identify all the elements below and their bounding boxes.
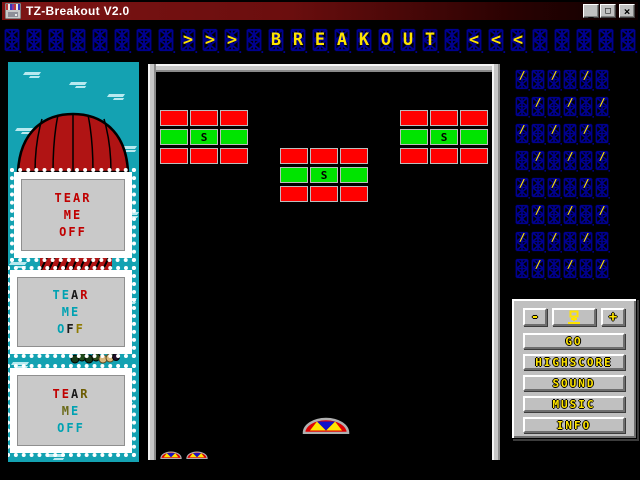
tear-off-stamp[interactable]: TEARMEOFF bbox=[14, 172, 132, 258]
marquee-led-cell: K bbox=[353, 27, 375, 53]
marquee-led-cell bbox=[243, 27, 265, 53]
grid-led-cell bbox=[546, 257, 562, 280]
grid-led-cell: / bbox=[530, 95, 546, 118]
control-panel: - + GOHIGHSCORESOUNDMUSICINFO bbox=[511, 298, 637, 439]
jellyfish-dome bbox=[12, 110, 134, 174]
app-window: TZ-Breakout V2.0 _ □ × >>>BREAKOUT<<< bbox=[0, 0, 640, 480]
brick bbox=[190, 110, 218, 126]
marquee-led-cell: E bbox=[309, 27, 331, 53]
grid-led-cell bbox=[562, 122, 578, 145]
paddle[interactable] bbox=[302, 417, 350, 434]
grid-led-cell: / bbox=[530, 149, 546, 172]
brick bbox=[430, 148, 458, 164]
stamp-text-line: TEAR bbox=[53, 288, 90, 302]
menu-buttons: GOHIGHSCORESOUNDMUSICINFO bbox=[523, 333, 625, 433]
grid-led-cell: / bbox=[562, 257, 578, 280]
adjuster-row: - + bbox=[523, 308, 625, 326]
grid-led-cell: / bbox=[514, 68, 530, 91]
sound-button[interactable]: SOUND bbox=[523, 375, 625, 391]
wind-streak bbox=[9, 262, 27, 265]
grid-led-cell bbox=[594, 122, 610, 145]
marquee-led-cell: U bbox=[397, 27, 419, 53]
brick bbox=[220, 148, 248, 164]
led-grid: //////////////////////// bbox=[514, 68, 610, 284]
playfield-interior: SSS bbox=[156, 72, 492, 462]
grid-led-cell: / bbox=[546, 176, 562, 199]
marquee-led-cell: A bbox=[331, 27, 353, 53]
grid-led-cell bbox=[578, 257, 594, 280]
tear-off-stamp[interactable]: TEARMEOFF bbox=[10, 270, 132, 354]
brick bbox=[460, 110, 488, 126]
brick bbox=[160, 129, 188, 145]
stamp-face: TEARMEOFF bbox=[17, 277, 125, 347]
grid-led-cell: / bbox=[562, 203, 578, 226]
marquee-led-cell bbox=[573, 27, 595, 53]
brick bbox=[190, 148, 218, 164]
stamp-text-line: ME bbox=[62, 404, 80, 418]
marquee-led-cell: R bbox=[287, 27, 309, 53]
grid-led-cell bbox=[514, 149, 530, 172]
grid-led-cell: / bbox=[594, 257, 610, 280]
marquee-display: >>>BREAKOUT<<< bbox=[1, 27, 639, 53]
playfield: SSS bbox=[148, 64, 500, 462]
marquee-led-cell bbox=[89, 27, 111, 53]
special-brick: S bbox=[430, 129, 458, 145]
marquee-led-cell bbox=[617, 27, 639, 53]
grid-led-cell bbox=[594, 68, 610, 91]
brick bbox=[160, 148, 188, 164]
brick bbox=[460, 129, 488, 145]
wind-streak bbox=[23, 72, 41, 75]
wind-streak bbox=[47, 454, 65, 457]
brick bbox=[310, 186, 338, 202]
stamp-text-line: OFF bbox=[57, 322, 85, 336]
grid-led-cell bbox=[530, 176, 546, 199]
brick bbox=[460, 148, 488, 164]
grid-led-cell: / bbox=[514, 122, 530, 145]
marquee-led-cell bbox=[551, 27, 573, 53]
grid-led-cell: / bbox=[562, 95, 578, 118]
marquee-led-cell bbox=[67, 27, 89, 53]
special-brick: S bbox=[310, 167, 338, 183]
grid-led-cell bbox=[594, 176, 610, 199]
stamp-text-line: OFF bbox=[57, 421, 85, 435]
brick bbox=[280, 186, 308, 202]
grid-led-cell: / bbox=[562, 149, 578, 172]
grid-led-cell: / bbox=[514, 230, 530, 253]
decrease-button[interactable]: - bbox=[523, 308, 547, 326]
marquee-led-cell: > bbox=[177, 27, 199, 53]
wind-streak bbox=[107, 94, 125, 97]
playfield-wall-right bbox=[492, 64, 500, 460]
grid-led-cell: / bbox=[530, 203, 546, 226]
marquee-led-cell bbox=[45, 27, 67, 53]
marquee-led-cell bbox=[595, 27, 617, 53]
grid-led-cell bbox=[562, 230, 578, 253]
marquee-led-cell: O bbox=[375, 27, 397, 53]
app-icon bbox=[5, 3, 21, 19]
player-level-button[interactable] bbox=[552, 308, 596, 326]
window-controls: _ □ × bbox=[583, 4, 635, 18]
music-button[interactable]: MUSIC bbox=[523, 396, 625, 412]
go-button[interactable]: GO bbox=[523, 333, 625, 349]
window-title: TZ-Breakout V2.0 bbox=[26, 4, 130, 18]
wind-streak bbox=[69, 82, 87, 85]
grid-led-cell: / bbox=[546, 122, 562, 145]
grid-led-cell: / bbox=[514, 176, 530, 199]
grid-led-cell bbox=[530, 122, 546, 145]
marquee-led-cell bbox=[529, 27, 551, 53]
grid-led-cell: / bbox=[578, 122, 594, 145]
titlebar: TZ-Breakout V2.0 _ □ × bbox=[2, 2, 638, 20]
marquee-led-cell bbox=[133, 27, 155, 53]
stamp-face: TEARMEOFF bbox=[21, 179, 125, 251]
marquee-led-cell bbox=[1, 27, 23, 53]
grid-led-cell bbox=[530, 68, 546, 91]
grid-led-cell: / bbox=[530, 257, 546, 280]
highscore-button[interactable]: HIGHSCORE bbox=[523, 354, 625, 370]
increase-button[interactable]: + bbox=[601, 308, 625, 326]
stamp-text-line: TEAR bbox=[55, 191, 92, 205]
grid-led-cell bbox=[514, 203, 530, 226]
brick bbox=[340, 186, 368, 202]
stamp-text-line: ME bbox=[62, 305, 80, 319]
brick bbox=[160, 110, 188, 126]
grid-led-cell bbox=[578, 149, 594, 172]
grid-led-cell: / bbox=[594, 95, 610, 118]
grid-led-cell bbox=[514, 95, 530, 118]
grid-led-cell: / bbox=[594, 203, 610, 226]
stamp-text-line: TEAR bbox=[53, 387, 90, 401]
brick bbox=[430, 110, 458, 126]
life-paddle bbox=[186, 450, 208, 460]
grid-led-cell bbox=[530, 230, 546, 253]
player-icon bbox=[566, 310, 582, 325]
sidebar: TEARMEOFF TEARMEOFF TEARMEOFF bbox=[8, 62, 139, 462]
grid-led-cell: / bbox=[594, 149, 610, 172]
brick bbox=[400, 129, 428, 145]
close-button[interactable]: × bbox=[619, 4, 635, 18]
brick bbox=[220, 110, 248, 126]
marquee-led-cell: < bbox=[485, 27, 507, 53]
grid-led-cell bbox=[562, 176, 578, 199]
marquee-led-cell: > bbox=[199, 27, 221, 53]
grid-led-cell bbox=[578, 203, 594, 226]
stamp-face: TEARMEOFF bbox=[17, 375, 125, 446]
marquee-led-cell: > bbox=[221, 27, 243, 53]
grid-led-cell bbox=[514, 257, 530, 280]
playfield-wall-left bbox=[148, 64, 156, 460]
info-button[interactable]: INFO bbox=[523, 417, 625, 433]
wind-streak bbox=[11, 362, 29, 365]
brick bbox=[400, 110, 428, 126]
grid-led-cell bbox=[546, 203, 562, 226]
stamp-text-line: ME bbox=[64, 208, 82, 222]
marquee-led-cell: T bbox=[419, 27, 441, 53]
brick bbox=[280, 148, 308, 164]
brick bbox=[340, 167, 368, 183]
marquee-led-cell bbox=[441, 27, 463, 53]
marquee-led-cell bbox=[111, 27, 133, 53]
grid-led-cell bbox=[594, 230, 610, 253]
minimize-button[interactable]: _ bbox=[583, 4, 599, 18]
marquee-led-cell: B bbox=[265, 27, 287, 53]
playfield-wall-top bbox=[148, 64, 500, 72]
brick bbox=[340, 148, 368, 164]
grid-led-cell bbox=[562, 68, 578, 91]
grid-led-cell: / bbox=[578, 68, 594, 91]
grid-led-cell: / bbox=[578, 176, 594, 199]
stamp-text-line: OFF bbox=[59, 225, 87, 239]
grid-led-cell: / bbox=[578, 230, 594, 253]
grid-led-cell: / bbox=[546, 68, 562, 91]
brick bbox=[400, 148, 428, 164]
grid-led-cell bbox=[546, 95, 562, 118]
marquee-led-cell: < bbox=[507, 27, 529, 53]
maximize-button[interactable]: □ bbox=[600, 4, 616, 18]
marquee-led-cell bbox=[155, 27, 177, 53]
grid-led-cell bbox=[578, 95, 594, 118]
special-brick: S bbox=[190, 129, 218, 145]
life-paddle bbox=[160, 450, 182, 460]
marquee-led-cell bbox=[23, 27, 45, 53]
brick bbox=[310, 148, 338, 164]
grid-led-cell bbox=[546, 149, 562, 172]
grid-led-cell: / bbox=[546, 230, 562, 253]
tear-off-stamp[interactable]: TEARMEOFF bbox=[10, 368, 132, 453]
brick bbox=[220, 129, 248, 145]
marquee-led-cell: < bbox=[463, 27, 485, 53]
brick bbox=[280, 167, 308, 183]
